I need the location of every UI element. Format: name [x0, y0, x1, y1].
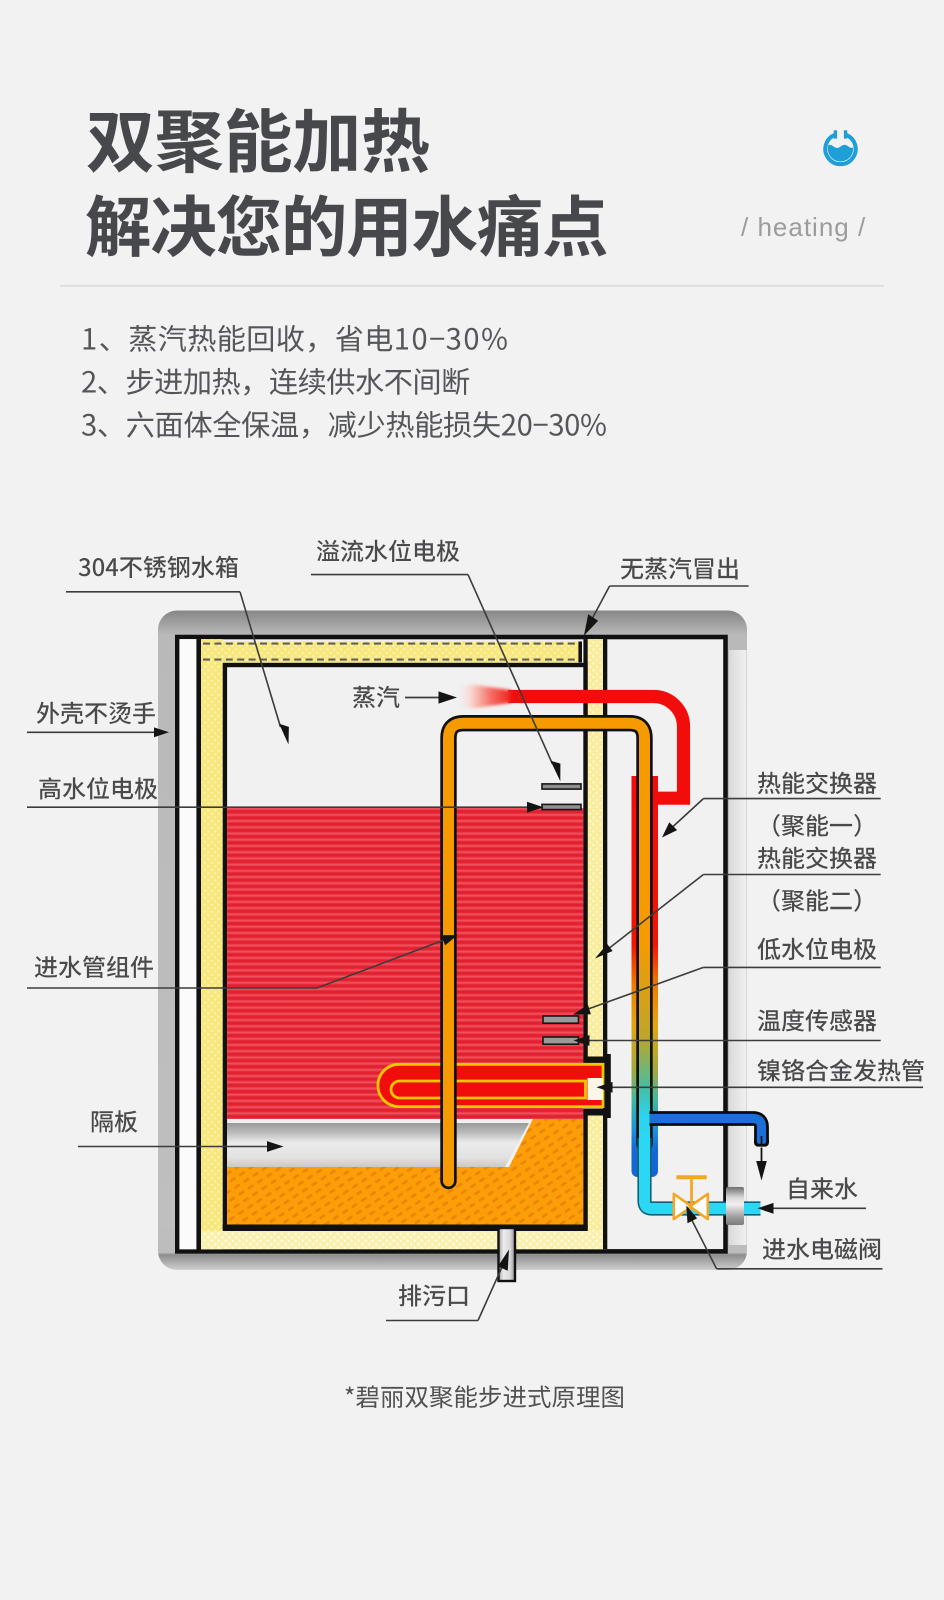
svg-text:/ heating /: / heating / [741, 212, 866, 242]
